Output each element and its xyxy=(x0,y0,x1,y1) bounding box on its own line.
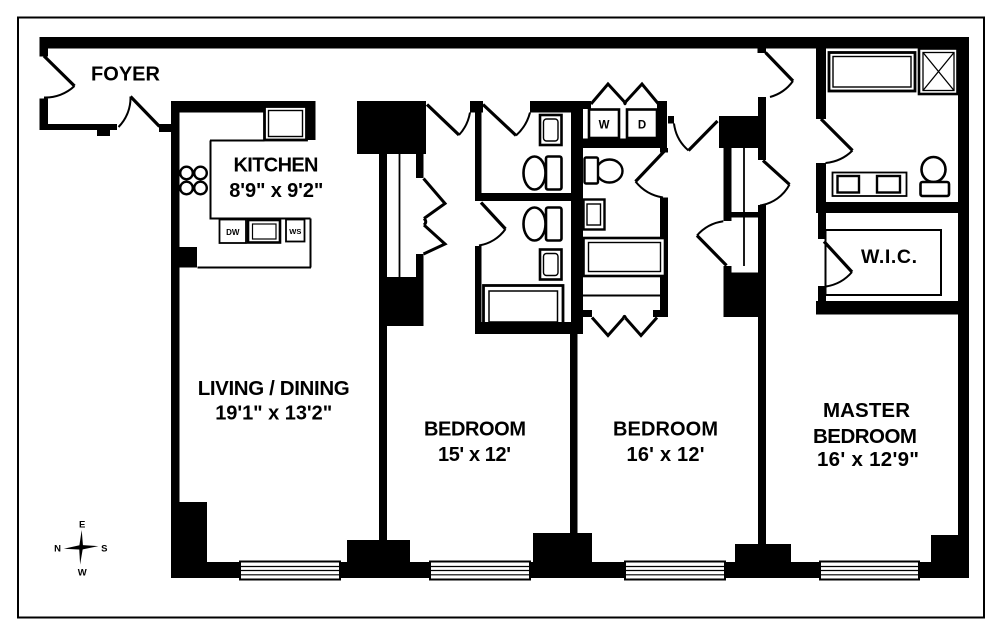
svg-text:BEDROOM: BEDROOM xyxy=(613,419,718,441)
svg-text:BEDROOM: BEDROOM xyxy=(424,419,526,441)
svg-text:W.I.C.: W.I.C. xyxy=(861,246,917,268)
svg-text:N: N xyxy=(54,543,61,554)
svg-text:WS: WS xyxy=(289,227,301,236)
svg-text:KITCHEN: KITCHEN xyxy=(234,155,319,177)
svg-text:15' x 12': 15' x 12' xyxy=(438,444,511,466)
svg-text:BEDROOM: BEDROOM xyxy=(813,425,917,448)
svg-text:W: W xyxy=(599,120,610,132)
svg-text:FOYER: FOYER xyxy=(91,64,161,86)
svg-text:D: D xyxy=(638,120,646,132)
svg-text:DW: DW xyxy=(226,228,240,237)
svg-text:19'1" x 13'2": 19'1" x 13'2" xyxy=(215,403,332,425)
svg-text:W: W xyxy=(78,568,87,579)
svg-text:S: S xyxy=(101,543,107,554)
svg-text:MASTER: MASTER xyxy=(823,399,910,422)
svg-text:16' x 12'9": 16' x 12'9" xyxy=(817,448,919,471)
svg-text:16' x 12': 16' x 12' xyxy=(627,444,705,466)
svg-text:LIVING / DINING: LIVING / DINING xyxy=(198,377,350,400)
svg-text:E: E xyxy=(79,520,85,531)
svg-text:8'9" x 9'2": 8'9" x 9'2" xyxy=(229,180,323,202)
